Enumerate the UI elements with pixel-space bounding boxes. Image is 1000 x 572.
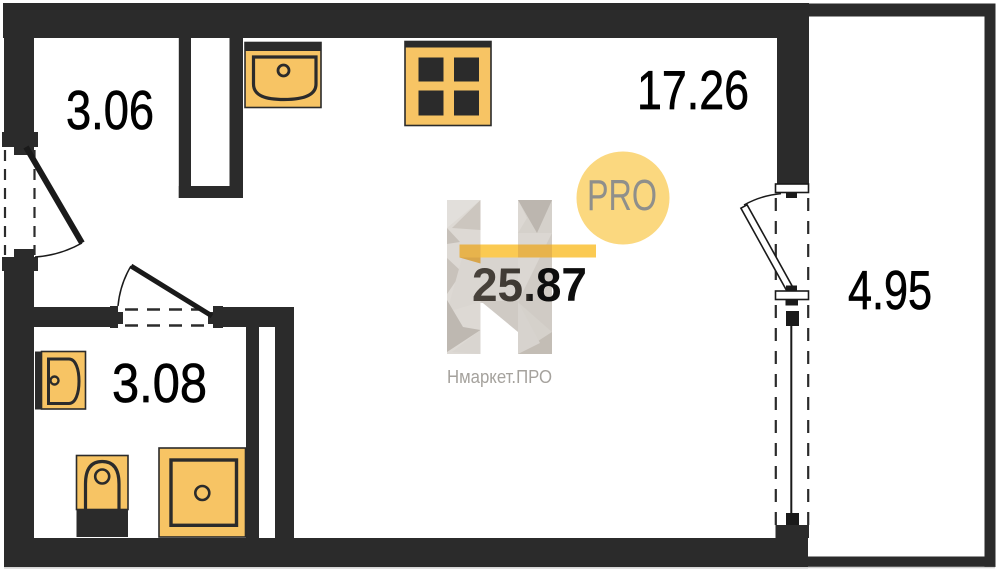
svg-text:25.87: 25.87 — [472, 258, 587, 311]
svg-text:4.95: 4.95 — [848, 259, 932, 321]
svg-text:PRO: PRO — [587, 171, 657, 220]
svg-text:3.08: 3.08 — [112, 352, 207, 414]
svg-text:Нмаркет.ПРО: Нмаркет.ПРО — [447, 367, 552, 387]
svg-text:3.06: 3.06 — [66, 79, 154, 141]
svg-text:17.26: 17.26 — [637, 59, 749, 121]
